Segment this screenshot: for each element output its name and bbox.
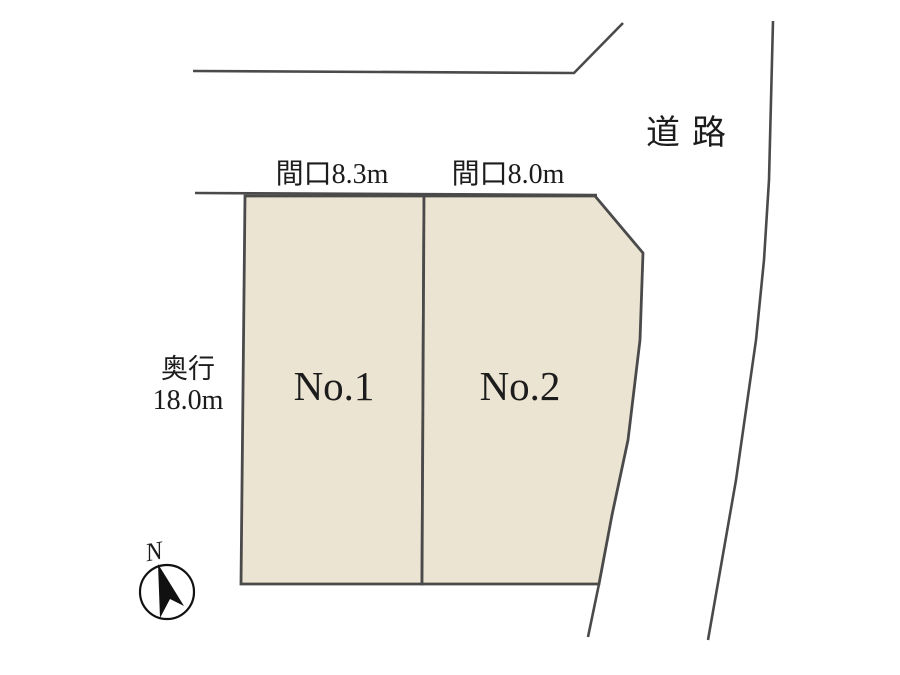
boundary-extension-line bbox=[588, 584, 599, 637]
lot-1-frontage-label: 間口8.3m bbox=[232, 152, 432, 192]
site-plan-drawing bbox=[0, 0, 900, 675]
depth-label: 奥行 18.0m bbox=[142, 353, 234, 417]
depth-label-text: 奥行 bbox=[142, 353, 234, 385]
plot-layout-diagram: 道路 間口8.3m 間口8.0m 奥行 18.0m No.1 No.2 N bbox=[0, 0, 900, 675]
lot-2-name: No.2 bbox=[420, 362, 620, 410]
compass-icon bbox=[140, 564, 194, 619]
road-label: 道路 bbox=[592, 105, 792, 154]
lot-2-frontage-label: 間口8.0m bbox=[408, 152, 608, 192]
lot-1-name: No.1 bbox=[234, 362, 434, 410]
road-upper-edge-line bbox=[193, 23, 623, 73]
depth-value: 18.0m bbox=[142, 385, 234, 417]
